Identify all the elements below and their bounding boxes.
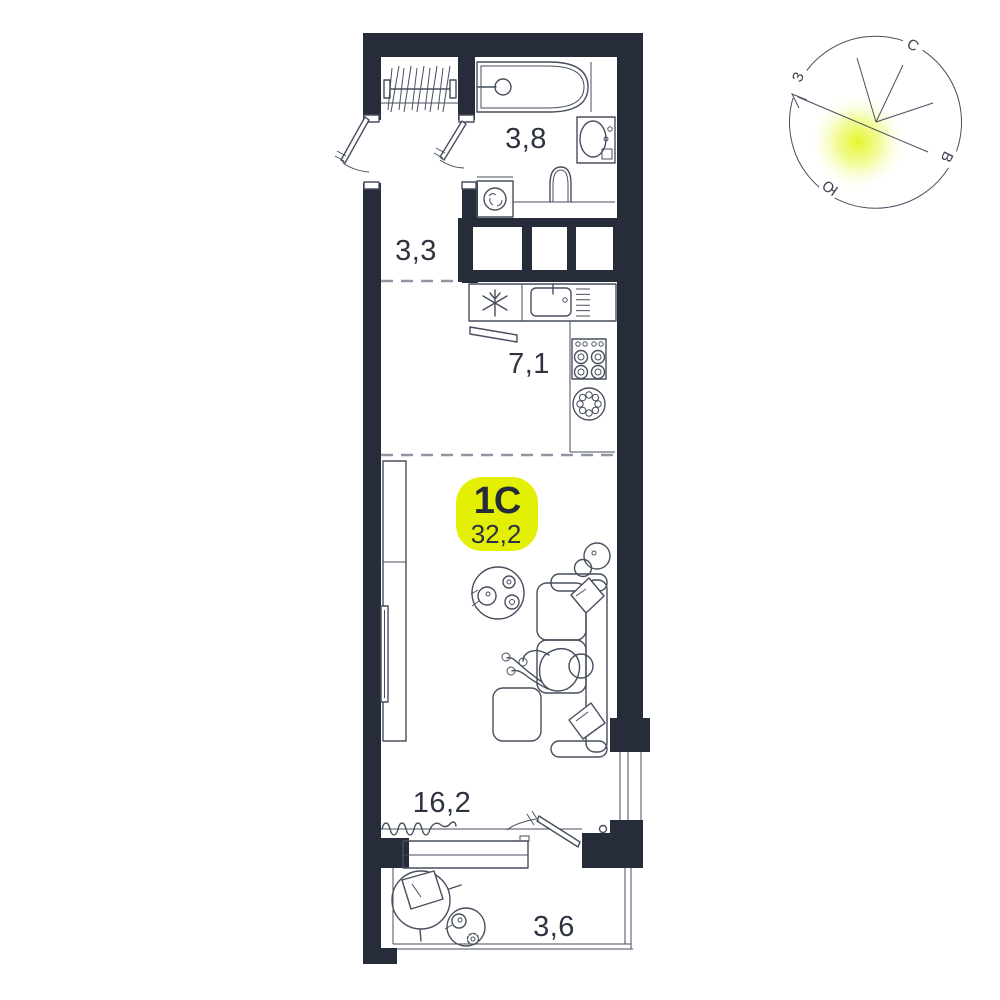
entrance-door <box>335 117 369 172</box>
ventilation-shaft <box>532 227 567 270</box>
floor-plan-page: 1С 32,2 <box>0 0 1000 1000</box>
armchair-pillow <box>402 871 443 909</box>
floor-lamp-dot <box>592 551 596 555</box>
balcony-cup-dot <box>471 937 475 941</box>
label-balcony-area: 3,6 <box>533 911 575 943</box>
balcony-teapot <box>452 914 466 928</box>
balcony-armchair <box>392 871 461 941</box>
teapot-knob <box>486 592 490 596</box>
cup <box>503 576 515 588</box>
unit-total-area: 32,2 <box>471 519 522 549</box>
bathroom-door <box>434 121 466 168</box>
drainboard-lines <box>576 289 590 316</box>
unit-type-label: 1С <box>474 480 521 522</box>
bathroom-door-leaf <box>440 121 466 160</box>
label-bathroom-area: 3,8 <box>505 123 547 155</box>
ventilation-shaft <box>576 227 613 270</box>
person-torso <box>540 649 580 691</box>
fruit-bowl-contents <box>577 392 601 416</box>
wall-balcony-door-block <box>582 820 643 868</box>
cup <box>505 595 519 609</box>
wall-closet-bath-divider <box>458 57 475 120</box>
toilet-inner <box>553 170 568 202</box>
fridge-open-flap <box>470 327 517 342</box>
bathtub-drain <box>495 79 511 95</box>
entry-closet <box>381 66 458 112</box>
wall-left-upper <box>363 33 381 120</box>
fruit-bowl <box>573 388 605 420</box>
washing-machine-blades <box>489 194 502 206</box>
balcony-teapot-spout <box>445 925 452 929</box>
kitchen-counter-right <box>570 321 615 452</box>
area-badge: 1С 32,2 <box>456 477 538 551</box>
door-frame-stub <box>462 182 476 189</box>
coffee-table <box>472 567 524 619</box>
cup-dot <box>507 580 511 584</box>
door-stop <box>600 826 607 833</box>
balcony-door-handle <box>527 811 539 825</box>
wall-left-main <box>363 183 381 962</box>
balcony-cup <box>468 934 479 945</box>
person-on-sofa <box>502 649 593 691</box>
floor-lamp <box>584 543 610 569</box>
cup-dot <box>510 600 515 605</box>
balcony-table-top <box>447 908 485 946</box>
sofa-armrest-bottom <box>551 741 607 757</box>
washbasin-accessory <box>608 127 612 131</box>
kitchen-sink-drain <box>563 298 567 302</box>
compass: С В Ю З <box>787 34 962 208</box>
window-notch <box>520 836 529 841</box>
sun-glow <box>808 92 908 192</box>
entrance-door-swing-arc <box>343 163 369 172</box>
bathroom-door-swing-arc <box>440 160 464 168</box>
wall-right-bump <box>610 718 650 752</box>
label-hallway-area: 3,3 <box>395 235 437 267</box>
label-kitchen-area: 7,1 <box>508 348 550 380</box>
compass-arrow-icon <box>792 94 807 108</box>
wall-right-main <box>617 33 643 718</box>
stove-burners-inner <box>578 354 601 375</box>
wall-corner-under-window <box>381 838 409 868</box>
balcony-teapot-knob <box>458 918 462 922</box>
wall-top <box>363 33 643 57</box>
stove-knobs <box>576 342 603 346</box>
label-living-area: 16,2 <box>413 787 471 819</box>
balcony-table <box>445 908 485 946</box>
washing-machine <box>477 181 513 217</box>
closet-rail-bracket <box>450 80 456 98</box>
balcony-door-leaf <box>537 816 580 847</box>
door-frame-stub <box>364 182 379 189</box>
floor-plan: 1С 32,2 <box>0 0 1000 1000</box>
fridge-snowflake-icon <box>483 290 507 316</box>
sofa-ottoman <box>493 688 541 741</box>
ventilation-shaft <box>473 227 522 270</box>
person-head <box>569 654 593 678</box>
side-window <box>620 752 641 820</box>
washing-machine-drum <box>484 188 506 210</box>
wall-balcony-foot <box>363 948 397 964</box>
pillow <box>569 703 605 739</box>
balcony <box>392 868 633 949</box>
